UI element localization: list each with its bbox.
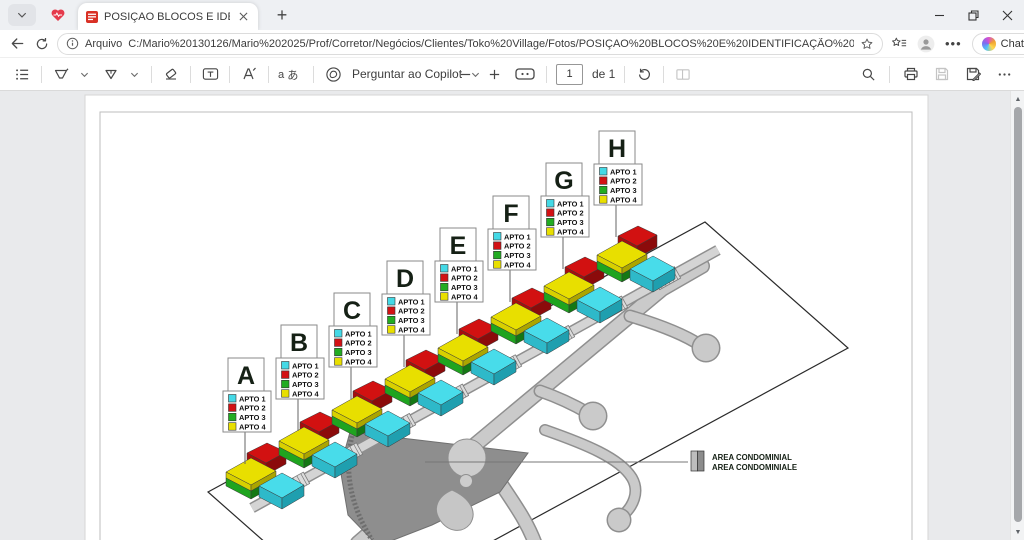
search-icon [861,67,876,82]
apto-label: APTO 2 [398,307,425,316]
apto-swatch [388,298,396,306]
apto-label: APTO 3 [239,413,266,422]
highlight-tool-button[interactable] [51,62,71,86]
block-letter: C [343,297,361,325]
highlighter-icon [53,66,69,82]
apto-swatch [441,283,449,291]
protocol-label: Arquivo [85,38,122,50]
area-label-line2: AREA CONDOMINIALE [712,463,797,472]
tab-search-button[interactable] [8,4,36,26]
search-document-button[interactable] [858,62,878,86]
apto-label: APTO 4 [504,261,531,270]
rotate-button[interactable] [634,62,654,86]
heart-pulse-icon [50,7,66,23]
apto-label: APTO 3 [610,186,637,195]
new-tab-button[interactable]: + [270,6,294,24]
erase-tool-button[interactable] [161,62,181,86]
vertical-scrollbar[interactable]: ▲ ▼ [1010,91,1024,540]
apto-label: APTO 2 [451,274,478,283]
apto-label: APTO 4 [345,358,372,367]
svg-text:a: a [278,69,285,81]
area-swatch-dark [698,451,705,471]
translate-button[interactable]: aあ [278,62,304,86]
page-total-label: de 1 [592,67,615,81]
apto-swatch [547,228,555,236]
favorites-button[interactable] [891,36,907,51]
apto-label: APTO 1 [345,329,372,338]
active-tab[interactable]: POSIÇAO BLOCOS E IDENTIFICAÇÃ [78,3,258,30]
window-controls [922,0,1024,30]
apto-swatch [229,413,237,421]
apto-swatch [600,177,608,185]
refresh-icon [35,37,49,51]
scrollbar-thumb[interactable] [1014,107,1022,522]
apto-label: APTO 3 [398,316,425,325]
pdf-toolbar: aあ Perguntar ao Copilot de 1 [0,58,1024,91]
apto-swatch [335,358,343,366]
apto-swatch [600,186,608,194]
scroll-up-arrow[interactable]: ▲ [1011,93,1024,105]
printer-icon [903,66,919,82]
page-number-input[interactable] [556,64,583,85]
restore-button[interactable] [956,0,990,30]
apto-swatch [388,307,396,315]
close-button[interactable] [990,0,1024,30]
save-button [932,62,952,86]
add-text-button[interactable] [200,62,220,86]
apto-label: APTO 4 [451,293,478,302]
settings-menu-button[interactable]: ••• [945,36,962,51]
scroll-down-arrow[interactable]: ▼ [1011,526,1024,538]
apto-label: APTO 3 [557,218,584,227]
browser-essentials-button[interactable] [50,7,66,23]
two-page-icon [675,67,691,82]
apto-swatch [441,265,449,273]
tab-strip: POSIÇAO BLOCOS E IDENTIFICAÇÃ + [0,0,1024,30]
apto-swatch [547,218,555,226]
apto-swatch [229,423,237,431]
favorites-list-icon [891,36,907,51]
save-as-icon [965,66,981,82]
read-aloud-button[interactable] [239,62,259,86]
rotate-icon [637,67,652,82]
pen-nib-icon [103,66,119,82]
page-view-button [673,62,693,86]
apto-label: APTO 1 [557,199,584,208]
apto-swatch [229,395,237,403]
apto-swatch [335,339,343,347]
back-button[interactable] [10,36,25,51]
apto-swatch [494,242,502,250]
apto-label: APTO 3 [345,348,372,357]
apto-swatch [441,274,449,282]
text-box-icon [202,66,219,82]
save-icon [934,66,950,82]
area-label-line1: AREA CONDOMINIAL [712,453,792,462]
apto-swatch [335,330,343,338]
apto-label: APTO 2 [345,339,372,348]
ellipsis-icon [997,67,1012,82]
roundabout [448,439,486,477]
apto-swatch [441,293,449,301]
apto-swatch [494,251,502,258]
apto-label: APTO 4 [557,228,584,237]
address-bar[interactable]: Arquivo C:/Mario%20130126/Mario%202025/P… [57,33,883,55]
draw-options-chevron[interactable] [130,70,142,79]
zoom-out-button[interactable] [455,62,475,86]
table-of-contents-button[interactable] [12,62,32,86]
copilot-outline-icon [325,66,342,83]
apto-swatch [388,326,396,334]
apto-swatch [282,371,290,379]
apto-label: APTO 2 [239,404,266,413]
highlight-options-chevron[interactable] [80,70,92,79]
ask-copilot-icon[interactable] [323,62,343,86]
print-button[interactable] [901,62,921,86]
draw-tool-button[interactable] [101,62,121,86]
apto-label: APTO 1 [504,232,531,241]
apto-swatch [282,380,290,388]
more-options-button[interactable] [994,62,1014,86]
apto-swatch [388,316,396,324]
fit-to-width-button[interactable] [513,62,537,86]
info-icon[interactable] [66,37,79,50]
profile-avatar[interactable] [917,35,935,53]
block-letter: D [396,265,414,293]
person-icon [917,35,935,53]
translate-icon: aあ [278,67,304,82]
letter-a-pen-icon [241,66,257,82]
block-letter: F [503,200,518,228]
save-as-button[interactable] [963,62,983,86]
apto-label: APTO 1 [239,394,266,403]
ask-copilot-label[interactable]: Perguntar ao Copilot [352,67,462,81]
refresh-button[interactable] [35,37,49,51]
eraser-icon [163,66,179,82]
apto-label: APTO 2 [557,209,584,218]
favorite-star-icon[interactable] [860,37,874,51]
apto-label: APTO 4 [292,390,319,399]
close-icon [239,12,248,21]
area-swatch-light [691,451,698,471]
apto-swatch [547,200,555,208]
apto-label: APTO 4 [239,423,266,432]
apto-swatch [282,390,290,398]
apto-label: APTO 4 [398,326,425,335]
block-letter: B [290,329,308,357]
apto-swatch [229,404,237,412]
apto-label: APTO 2 [610,177,637,186]
zoom-in-button[interactable] [484,62,504,86]
url-text: C:/Mario%20130126/Mario%202025/Prof/Corr… [128,38,854,50]
browser-window: POSIÇAO BLOCOS E IDENTIFICAÇÃ + Arquivo … [0,0,1024,540]
copilot-icon [982,37,996,51]
apto-label: APTO 4 [610,196,637,205]
apto-label: APTO 1 [610,167,637,176]
apto-swatch [600,196,608,204]
pdf-file-icon [85,10,99,24]
svg-text:あ: あ [287,69,298,82]
block-letter: H [608,135,626,163]
copilot-chat-button[interactable]: Chat [972,33,1024,55]
back-arrow-icon [10,36,25,51]
apto-swatch [494,261,502,269]
chevron-down-icon [16,9,28,21]
apto-label: APTO 1 [292,361,319,370]
block-letter: E [450,232,467,260]
apto-swatch [335,348,343,356]
apto-label: APTO 2 [292,371,319,380]
address-row: Arquivo C:/Mario%20130126/Mario%202025/P… [0,30,1024,58]
apto-label: APTO 1 [451,264,478,273]
chat-label: Chat [1001,38,1024,50]
tab-close-button[interactable] [235,9,251,25]
site-plan-svg: AAPTO 1APTO 2APTO 3APTO 4BAPTO 1APTO 2AP… [0,90,1024,540]
apto-label: APTO 1 [398,297,425,306]
apto-swatch [494,233,502,241]
tab-title: POSIÇAO BLOCOS E IDENTIFICAÇÃ [104,11,230,23]
block-letter: G [554,167,573,195]
apto-label: APTO 2 [504,242,531,251]
block-letter: A [237,362,255,390]
apto-swatch [282,362,290,370]
apto-swatch [547,209,555,217]
apto-swatch [600,168,608,176]
pdf-viewport[interactable]: AAPTO 1APTO 2APTO 3APTO 4BAPTO 1APTO 2AP… [0,91,1024,540]
apto-label: APTO 3 [451,283,478,292]
apto-label: APTO 3 [292,380,319,389]
minimize-button[interactable] [922,0,956,30]
apto-label: APTO 3 [504,251,531,260]
